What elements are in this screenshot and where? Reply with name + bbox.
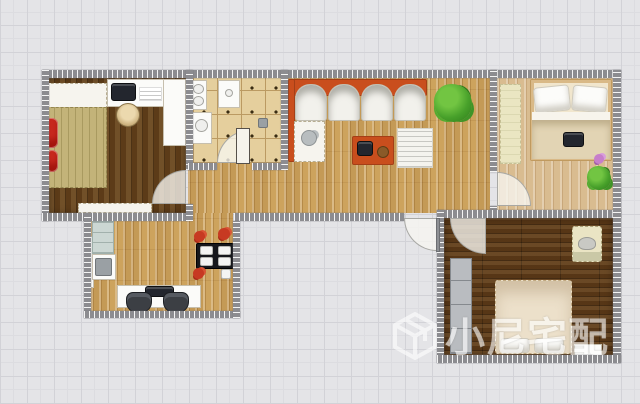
- coffee-table-bowl: [377, 146, 389, 158]
- left-bedroom-dresser: [78, 203, 152, 213]
- bathroom-floor-drain: [258, 118, 268, 128]
- dining-cabinet: [92, 221, 114, 254]
- right-bedroom-sheet: [532, 112, 610, 120]
- dining-flower-2: [218, 228, 230, 240]
- coffee-table-kettle: [357, 141, 373, 156]
- right-bedroom-flower: [594, 154, 604, 164]
- dining-flower-3: [193, 268, 204, 279]
- dining-plate-1: [200, 246, 213, 255]
- wall-living-bottom: [234, 213, 404, 221]
- bottom-bedroom-armchair-seat: [578, 237, 596, 250]
- wall-bedrooms-divider: [437, 210, 621, 218]
- dining-chair-1: [126, 292, 152, 313]
- wall-bathroom-bottom-right: [252, 163, 281, 170]
- left-bedroom-wardrobe: [163, 79, 186, 146]
- bottom-bedroom-pillow-1: [500, 338, 530, 353]
- bathroom-vanity-bowl-1: [193, 84, 204, 94]
- bottom-bedroom-wardrobe: [450, 258, 472, 354]
- dining-unit-panel: [95, 258, 112, 276]
- bottom-bedroom-pillow-2: [534, 338, 564, 353]
- bathroom-washer-door: [195, 119, 208, 132]
- left-bedroom-bedhead-mat: [46, 83, 107, 109]
- wall-top: [42, 70, 621, 78]
- bathroom-vanity-bowl-2: [193, 96, 204, 106]
- wall-dining-bottom: [84, 311, 240, 318]
- wall-left-bedroom-right-upper: [186, 70, 193, 170]
- wall-bathroom-bottom-left: [188, 163, 217, 170]
- living-plant: [434, 84, 472, 122]
- sofa-seat-1: [295, 84, 327, 121]
- sofa-teapot: [301, 130, 317, 146]
- sofa-seat-2: [328, 84, 360, 121]
- dining-chair-2: [163, 292, 189, 313]
- right-bedroom-mat: [500, 84, 521, 164]
- sofa-seat-4: [394, 84, 426, 121]
- entry-door-swing: [404, 218, 437, 251]
- wall-living-right: [490, 70, 497, 172]
- bathroom-shower-drain: [225, 89, 233, 97]
- wall-left-bedroom-bottom: [42, 213, 188, 221]
- cube-logo-icon: [390, 311, 440, 365]
- dining-plate-3: [200, 257, 213, 266]
- left-bedroom-stool: [116, 103, 140, 127]
- wall-left: [42, 70, 49, 221]
- left-bedroom-computer: [111, 83, 136, 101]
- sofa-seat-3: [361, 84, 393, 121]
- living-rug: [397, 128, 433, 168]
- dining-plate-2: [218, 246, 231, 255]
- entry-door-leaf: [436, 218, 440, 252]
- wall-left-bedroom-right-lower: [186, 204, 193, 221]
- dining-cup: [221, 269, 231, 279]
- dining-flower-1: [194, 231, 205, 242]
- right-bedroom-plant: [587, 166, 611, 190]
- dining-plate-4: [218, 257, 231, 266]
- floor-plan-canvas: 小尼宅配: [0, 0, 640, 404]
- wall-bottom-bedroom-bottom: [437, 355, 621, 363]
- wall-dining-left: [84, 213, 91, 318]
- right-bedroom-pillow-1: [533, 84, 572, 114]
- left-bedroom-keyboard: [139, 87, 162, 101]
- wall-bathroom-right: [281, 70, 288, 170]
- wall-dining-right: [233, 221, 240, 318]
- right-bedroom-pillow-2: [571, 85, 608, 114]
- wall-right: [613, 70, 621, 363]
- bathroom-door-leaf: [236, 128, 250, 164]
- right-bedroom-tray: [563, 132, 584, 147]
